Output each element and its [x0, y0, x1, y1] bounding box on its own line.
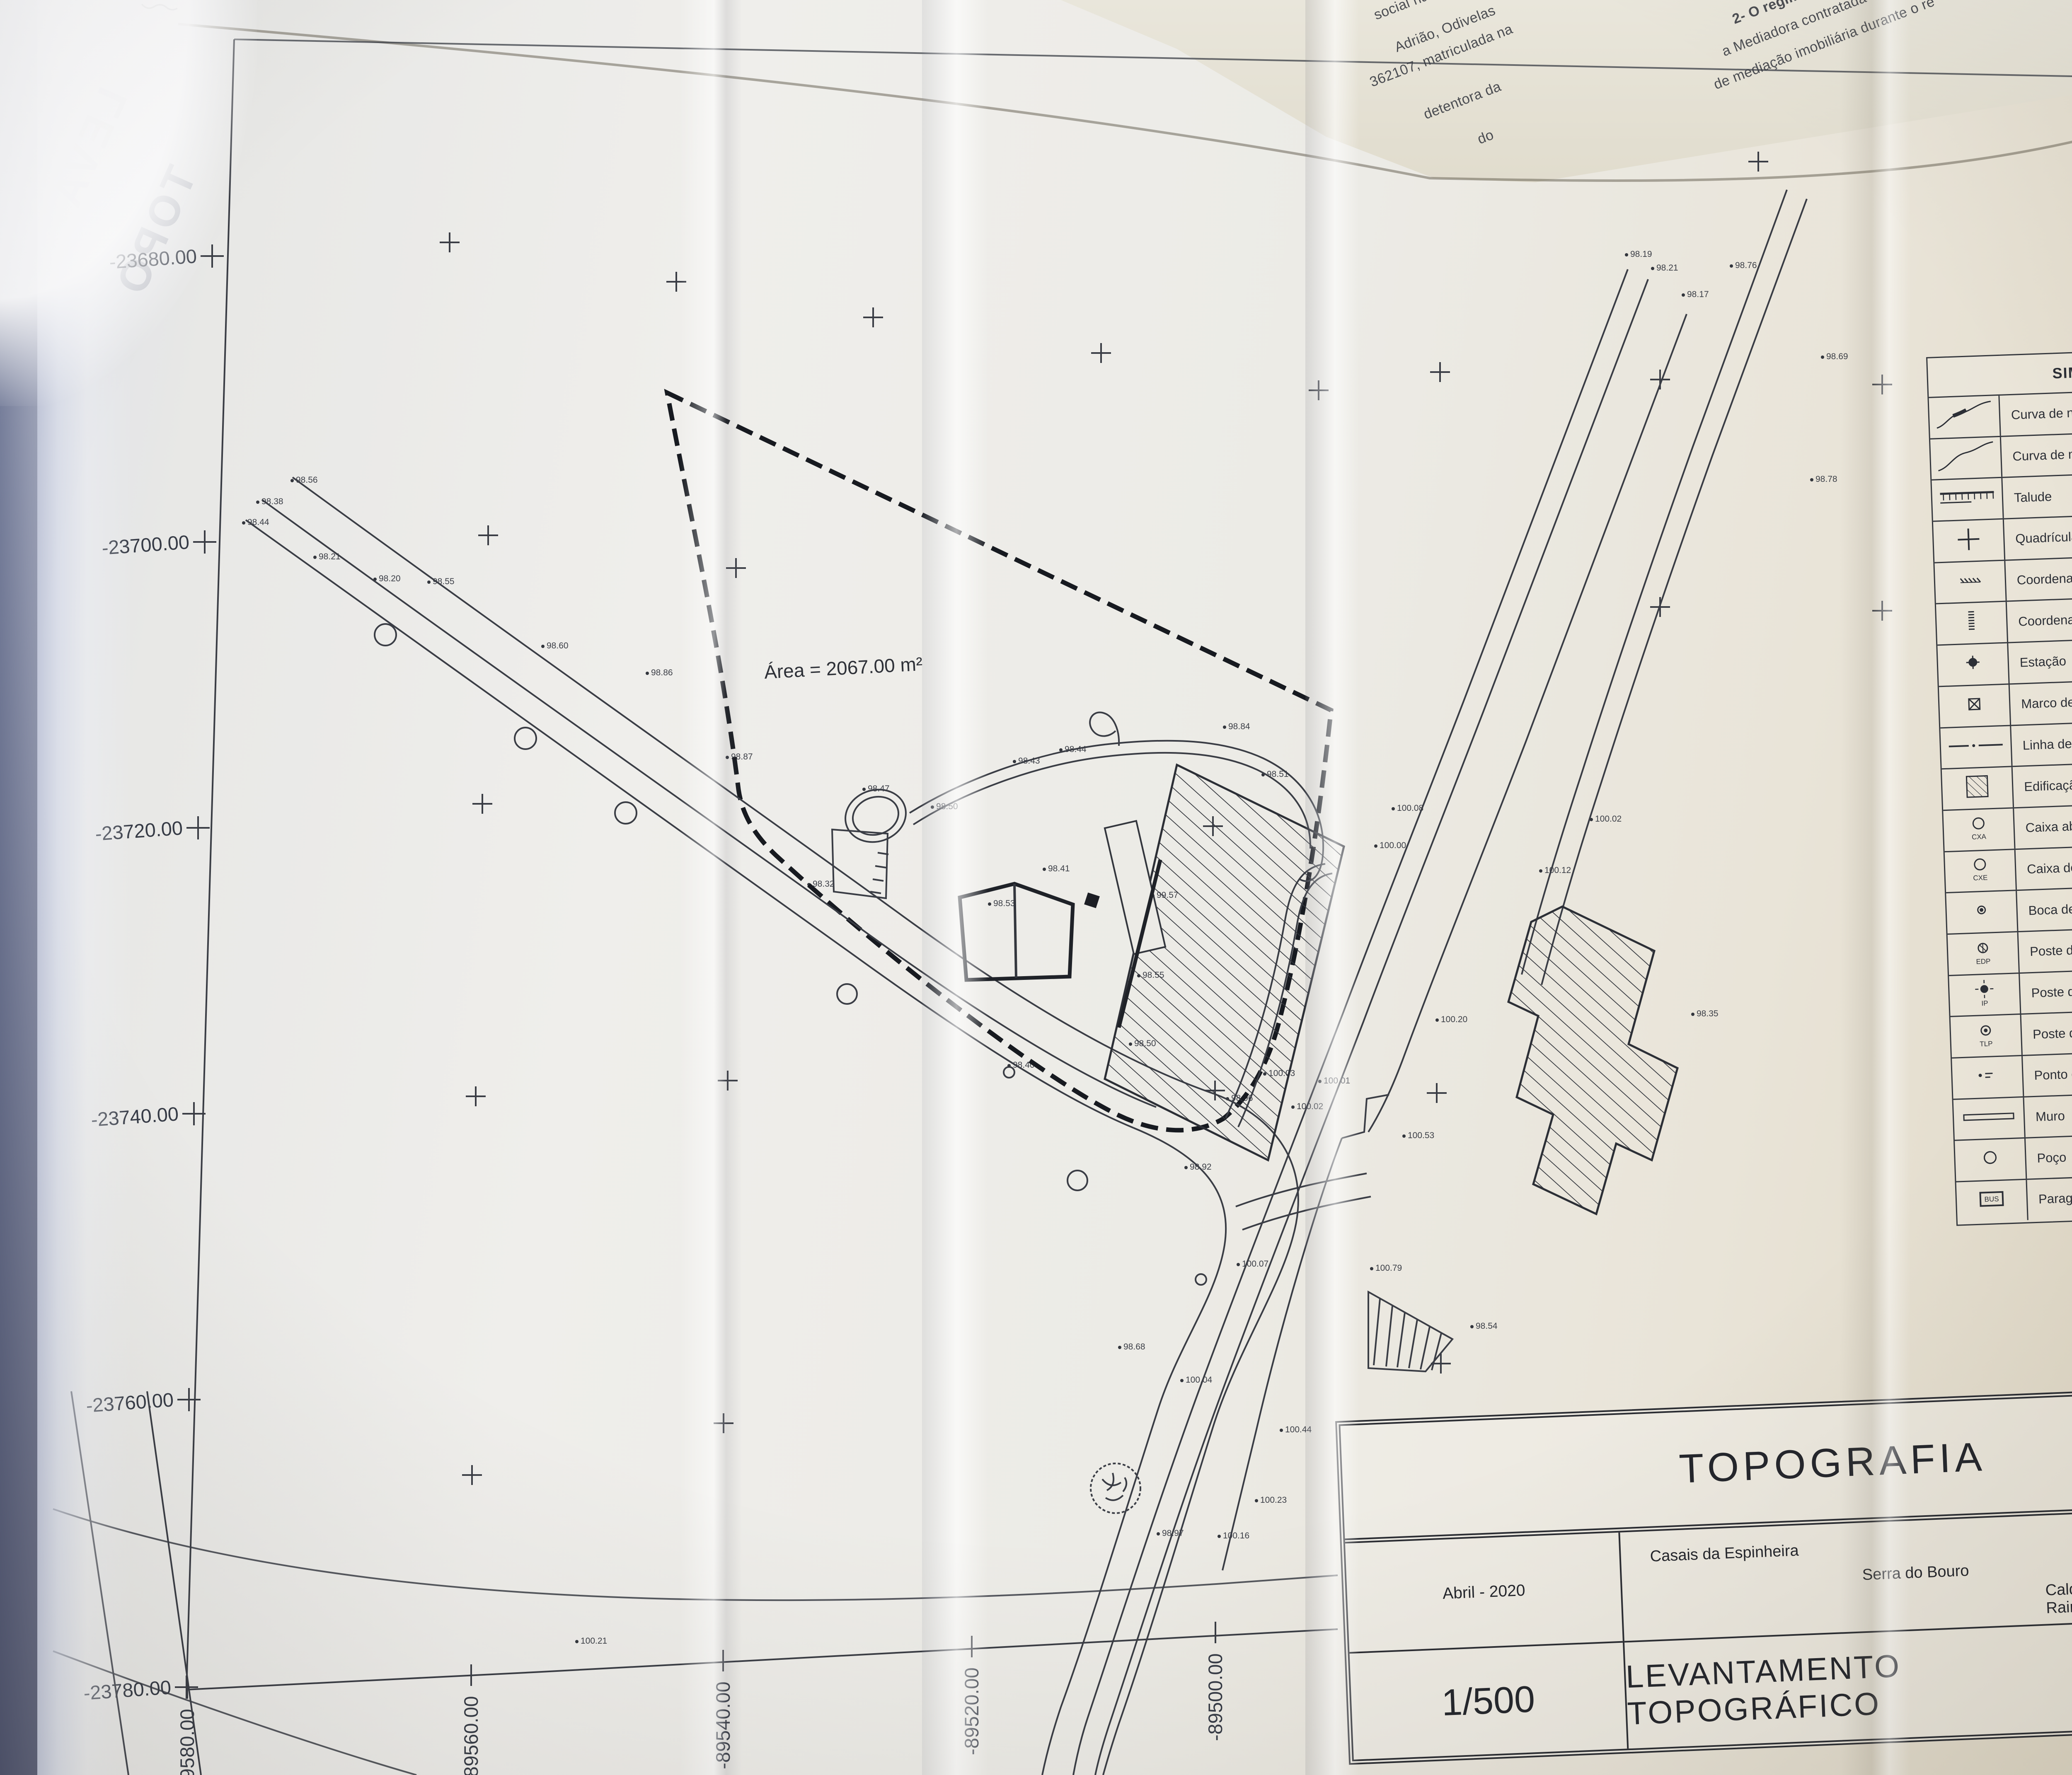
grid-cross-icon [1872, 601, 1892, 621]
contour-lines [53, 1509, 1338, 1775]
grid-cross-icon [1748, 152, 1768, 172]
svg-text:CXE: CXE [1973, 874, 1988, 882]
location-names: Casais da Espinheira Serra do Bouro Cald… [1620, 1511, 2072, 1641]
spot-elevation-value: 98.21 [1656, 263, 1678, 273]
sheet-subtitle: LEVANTAMENTO TOPOGRÁFICO [1624, 1619, 2072, 1748]
water-box-icon: CXA [1943, 808, 2015, 851]
contour-master-icon [1929, 396, 2001, 438]
spot-elevation-dot [1470, 1325, 1474, 1328]
spot-height-icon [1952, 1056, 2024, 1099]
y-axis-label: -23700.00 [101, 531, 190, 559]
spot-elevation-dot [1730, 264, 1733, 268]
spot-elevation-dot [1402, 1134, 1406, 1138]
spot-elevation-value: 98.32 [813, 879, 835, 889]
spot-elevation-value: 98.92 [1190, 1162, 1212, 1172]
spot-elevation-dot [1157, 1532, 1160, 1536]
spot-elevation-dot [1218, 1535, 1221, 1538]
spot-elevation-value: 98.86 [651, 668, 673, 677]
spot-elevation-value: 98.20 [379, 574, 401, 583]
spot-elevation-value: 100.79 [1375, 1263, 1402, 1273]
spot-elevation-value: 98.41 [1048, 864, 1070, 873]
spot-elevation-value: 98.56 [296, 475, 318, 485]
building-icon [1942, 767, 2014, 810]
telecom-pole-icon: TLP [1951, 1015, 2023, 1057]
spot-elevation-dot [313, 556, 317, 559]
place-area: Serra do Bouro [1862, 1562, 1969, 1584]
spot-elevation-dot [1237, 1263, 1240, 1266]
svg-text:BUS: BUS [1984, 1195, 1999, 1203]
spot-elevation-dot [1255, 1499, 1258, 1502]
spot-elevation-dot [1625, 253, 1628, 256]
spot-elevation-value: 98.54 [1476, 1321, 1498, 1331]
sewer-box-icon: CXE [1945, 850, 2017, 892]
y-axis-label: -23720.00 [94, 817, 184, 845]
property-marker-icon [1939, 684, 2011, 727]
svg-text:CXA: CXA [1972, 832, 1987, 841]
grid-cross-icon [1872, 375, 1892, 394]
x-axis-label: -89520.00 [961, 1667, 983, 1755]
wall-icon [1953, 1098, 2026, 1140]
x-axis-label: -89500.00 [1204, 1653, 1226, 1741]
utility-circle-icon [375, 624, 396, 646]
spot-elevation-dot [1539, 869, 1542, 873]
place-city: Caldas da Rainha [2045, 1577, 2072, 1617]
grid-cross-icon [714, 1413, 733, 1433]
spot-elevation-dot [1184, 1166, 1188, 1169]
spot-elevation-value: 98.17 [1687, 290, 1709, 299]
subtitle-value: LEVANTAMENTO TOPOGRÁFICO [1625, 1637, 2072, 1732]
spot-elevation-dot [1291, 1105, 1295, 1109]
well-icon [1955, 1139, 2027, 1181]
y-axis-label: -23740.00 [90, 1103, 179, 1131]
spot-elevation-dot [427, 580, 431, 584]
spot-elevation-value: 98.35 [1697, 1009, 1719, 1018]
spot-elevation-dot [256, 501, 259, 504]
spot-elevation-dot [1651, 267, 1654, 270]
sheet-title: TOPOGRAFIA [1678, 1433, 1987, 1492]
spot-elevation-dot [1392, 807, 1395, 810]
station-icon [1937, 643, 2009, 686]
photo-of-topographic-plan: social na Adrião, Odivelas 362107, matri… [0, 0, 2072, 1775]
spot-elevation-value: 100.53 [1408, 1131, 1434, 1140]
spot-elevation-dot [1821, 355, 1824, 359]
spot-elevation-dot [726, 756, 729, 759]
utility-box-circles [375, 624, 1206, 1285]
date-value: Abril - 2020 [1442, 1582, 1525, 1603]
spot-elevation-value: 98.44 [247, 518, 269, 527]
spot-elevation-dot [931, 805, 934, 809]
contour-secondary-icon [1930, 437, 2002, 479]
spot-elevation-dot [1374, 844, 1377, 848]
utility-circle-icon [837, 984, 857, 1004]
sheet-date: Abril - 2020 [1345, 1533, 1623, 1652]
grid-cross-icon [440, 232, 460, 252]
spot-elevation-value: 100.08 [1397, 803, 1423, 813]
slope-talude [1368, 1292, 1452, 1371]
bus-stop-icon: BUS [1956, 1180, 2028, 1223]
spot-elevation-dot [1691, 1013, 1694, 1016]
svg-text:TLP: TLP [1980, 1040, 1993, 1048]
spot-elevation-value: 100.23 [1260, 1495, 1287, 1505]
spot-elevation-dot [1013, 760, 1016, 763]
light-pole-icon: IP [1949, 974, 2021, 1016]
y-axis-tick [193, 530, 216, 554]
utility-circle-icon [1196, 1274, 1206, 1285]
spot-elevation-dot [1435, 1018, 1439, 1022]
utility-circle-icon [515, 728, 536, 749]
spot-elevation-value: 98.84 [1228, 722, 1250, 731]
edp-pole-icon: EDP [1948, 932, 2020, 975]
grid-cross-icon [726, 558, 746, 578]
grid-cross-icon [666, 272, 686, 292]
area-annotation: Área = 2067.00 m² [764, 653, 923, 683]
spot-elevation-value: 98.47 [868, 784, 890, 793]
x-axis-label: -89560.00 [460, 1696, 482, 1775]
axis-ticks-and-labels: -23680.00-23700.00-23720.00-23740.00-237… [83, 244, 1226, 1775]
grid-cross-icon [472, 794, 492, 814]
spot-elevation-dot [1007, 1064, 1011, 1067]
sheet-scale: 1/500 [1349, 1641, 1627, 1760]
spot-elevation-value: 100.16 [1223, 1531, 1249, 1540]
sheet-edge [178, 24, 2072, 181]
coordinate-m-icon [1936, 602, 2008, 645]
spot-elevation-dot [1223, 725, 1226, 729]
boundary-line-icon [1940, 726, 2012, 769]
grid-cross-icon [1933, 520, 2005, 562]
spot-elevation-dot [575, 1640, 579, 1643]
spot-elevation-value: 98.76 [1735, 261, 1757, 270]
svg-text:EDP: EDP [1976, 957, 1991, 965]
grid-cross-icon [1427, 1083, 1447, 1103]
utility-circle-icon [615, 802, 637, 824]
x-axis-label: -89540.00 [712, 1681, 734, 1769]
spot-elevation-value: 100.44 [1285, 1425, 1312, 1434]
spot-elevation-dot [1318, 1080, 1322, 1083]
spot-elevation-dot [1810, 478, 1813, 481]
x-axis-label: -89580.00 [176, 1709, 198, 1775]
building-east [1508, 907, 1677, 1214]
spot-elevation-value: 100.02 [1297, 1102, 1323, 1111]
grid-cross-icon [1430, 362, 1450, 382]
spot-elevation-value: 100.20 [1441, 1015, 1467, 1024]
spot-elevation-value: 98.19 [1630, 249, 1652, 259]
spot-elevation-value: 100.01 [1324, 1076, 1350, 1086]
grid-cross-icon [1309, 380, 1329, 400]
title-block: TOPOGRAFIA Abril - 2020 1/500 Casais da … [1335, 1381, 2072, 1765]
spot-elevation-value: 98.78 [1815, 474, 1837, 484]
y-axis-label: -23760.00 [85, 1388, 174, 1417]
coordinate-p-icon [1934, 561, 2007, 603]
y-axis-tick [177, 1388, 201, 1411]
spot-elevation-dot [1682, 293, 1685, 297]
y-axis-label: -23680.00 [109, 245, 198, 273]
svg-text:IP: IP [1981, 999, 1988, 1008]
spot-elevation-value: 100.02 [1595, 814, 1622, 824]
spot-elevation-dot [1043, 868, 1046, 871]
road-connector [1236, 1173, 1371, 1230]
grid-cross-icon [478, 525, 498, 545]
spot-elevation-dot [1280, 1429, 1283, 1432]
grid-cross-icon [863, 307, 883, 327]
spot-elevation-dot [1370, 1267, 1373, 1270]
slope-icon [1932, 478, 2004, 521]
road-south [1042, 1094, 1298, 1775]
spot-elevation-dot [290, 479, 294, 482]
fire-hydrant-icon [1946, 891, 2018, 933]
spot-elevation-dot [988, 902, 991, 906]
place-parish: Casais da Espinheira [1650, 1542, 1799, 1565]
building-annex [960, 884, 1100, 980]
handwriting-scribble [142, 4, 177, 10]
grid-cross-icon [718, 1071, 738, 1091]
spot-elevation-value: 100.04 [1186, 1375, 1213, 1385]
spot-elevation-value: 98.60 [547, 641, 569, 651]
spot-elevation-value: 100.12 [1544, 866, 1571, 875]
spot-elevation-value: 98.53 [993, 899, 1015, 908]
scale-value: 1/500 [1441, 1678, 1536, 1724]
spot-elevation-value: 100.21 [581, 1636, 607, 1646]
spot-elevation-value: 100.00 [1380, 841, 1406, 850]
spot-elevation-value: 98.69 [1826, 352, 1848, 361]
y-axis-tick [201, 244, 224, 268]
grid-cross-icon [462, 1465, 482, 1485]
grid-cross-icon [466, 1086, 486, 1106]
spot-elevation-dot [646, 672, 649, 675]
y-axis-tick [186, 816, 210, 839]
spot-elevation-dot [1180, 1379, 1184, 1382]
spot-elevation-dot [1118, 1346, 1121, 1349]
spot-elevation-dot [242, 521, 245, 525]
grid-cross-icon [1091, 343, 1111, 363]
spot-elevation-dot [541, 645, 545, 648]
spot-elevation-value: 98.68 [1123, 1342, 1145, 1352]
utility-circle-icon [1067, 1170, 1087, 1190]
spot-elevation-dot [862, 788, 866, 791]
